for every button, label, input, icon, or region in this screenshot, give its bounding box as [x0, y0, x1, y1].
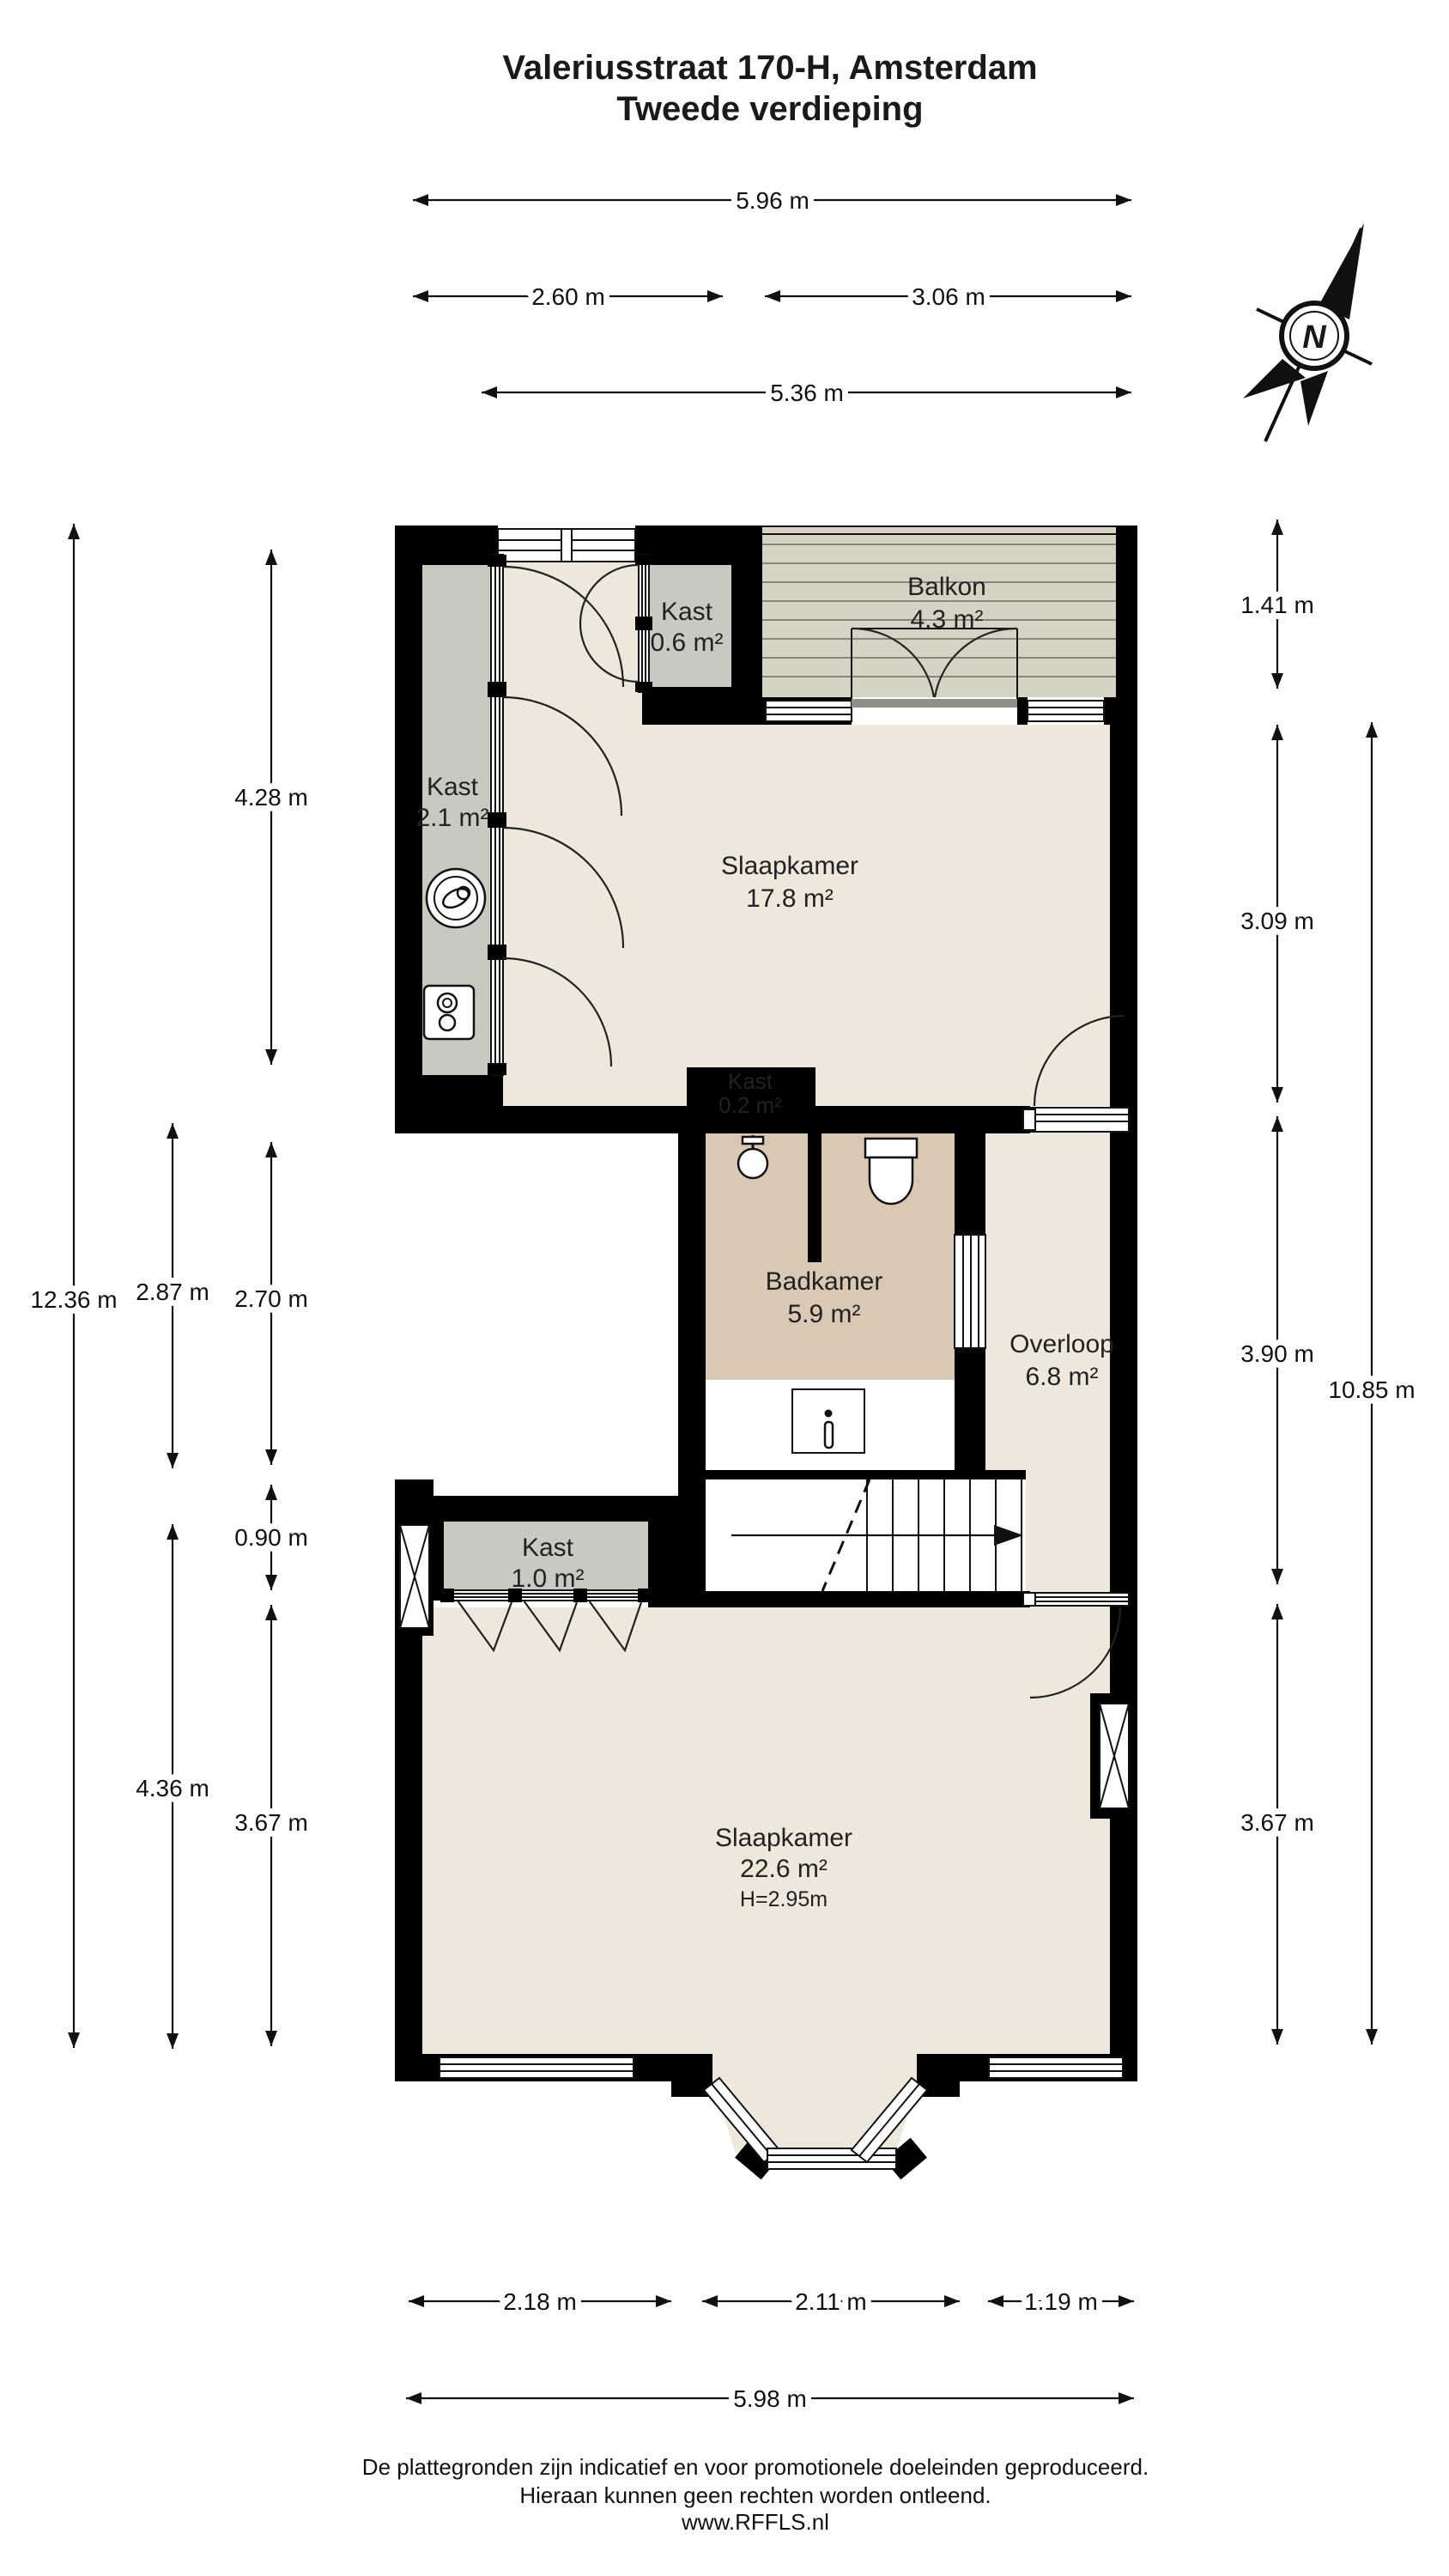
dim-label: 0.90 m — [234, 1524, 308, 1551]
window-bathroom-interior — [955, 1235, 985, 1348]
dim-label: 2.87 m — [136, 1279, 209, 1305]
dim-label: 2.70 m — [234, 1285, 308, 1312]
title-line2: Tweede verdieping — [616, 90, 923, 128]
label-balkon-name: Balkon — [907, 573, 986, 601]
dim-label: 1.19 m — [1024, 2288, 1098, 2315]
label-kast10-name: Kast — [522, 1534, 574, 1562]
dim-label: 4.28 m — [234, 784, 308, 811]
window-balcony-right — [1028, 701, 1104, 721]
dim-right-390: 3.90 m — [1240, 1116, 1314, 1584]
shower-icon — [792, 1389, 864, 1453]
dim-label: 3.67 m — [1240, 1809, 1314, 1836]
disclaimer-line2: Hieraan kunnen geen rechten worden ontle… — [519, 2482, 991, 2508]
dim-top-596: 5.96 m — [413, 187, 1131, 214]
dim-left-270: 2.70 m — [234, 1142, 308, 1465]
label-slaapkamer2-area: 22.6 m² — [740, 1855, 828, 1883]
label-badkamer-area: 5.9 m² — [787, 1300, 860, 1328]
label-slaapkamer2-name: Slaapkamer — [715, 1824, 852, 1852]
dim-label: 2.11 m — [795, 2288, 867, 2315]
dim-left-1236: 12.36 m — [30, 524, 117, 2048]
dim-right-141: 1.41 m — [1240, 519, 1314, 689]
dim-label: 5.36 m — [770, 380, 844, 406]
window-top — [498, 529, 635, 562]
dim-label: 2.60 m — [531, 283, 605, 310]
disclaimer-line1: De plattegronden zijn indicatief en voor… — [362, 2454, 1149, 2480]
dim-label: 2.18 m — [503, 2288, 577, 2315]
label-kast21-area: 2.1 m² — [415, 804, 488, 832]
disclaimer-line3: www.RFFLS.nl — [681, 2509, 829, 2535]
title-line1: Valeriusstraat 170-H, Amsterdam — [502, 49, 1037, 87]
label-slaapkamer2-height: H=2.95m — [740, 1887, 828, 1911]
label-kast21-name: Kast — [427, 773, 479, 801]
overloop-landing — [1026, 1479, 1110, 1607]
dim-bottom-119: 1.19 m — [988, 2288, 1134, 2315]
window-south-left — [440, 2057, 634, 2078]
floor-plan-canvas: Valeriusstraat 170-H, Amsterdam Tweede v… — [0, 0, 1449, 2576]
label-kast06-name: Kast — [661, 598, 713, 626]
dim-left-367: 3.67 m — [234, 1605, 308, 2046]
label-kast06-area: 0.6 m² — [650, 629, 723, 657]
dim-top-536: 5.36 m — [482, 380, 1131, 406]
dim-top-260: 2.60 m — [413, 283, 723, 310]
dim-left-436: 4.36 m — [136, 1524, 209, 2049]
dim-label: 5.98 m — [733, 2385, 807, 2412]
page-title: Valeriusstraat 170-H, Amsterdam Tweede v… — [502, 49, 1037, 128]
dim-label: 3.90 m — [1240, 1340, 1314, 1367]
dim-left-287: 2.87 m — [136, 1123, 209, 1468]
flue-shaft-left-icon — [400, 1525, 429, 1628]
toilet-icon — [865, 1139, 917, 1204]
dim-right-1085: 10.85 m — [1328, 722, 1415, 2044]
label-slaapkamer1-name: Slaapkamer — [721, 852, 858, 880]
dim-label: 1.41 m — [1240, 592, 1314, 618]
window-balcony-left — [766, 701, 852, 721]
compass-north-icon: N — [1243, 223, 1372, 441]
label-overloop-area: 6.8 m² — [1025, 1363, 1098, 1391]
washing-machine-icon — [427, 869, 485, 927]
dim-label: 12.36 m — [30, 1286, 117, 1313]
boiler-icon — [424, 986, 474, 1039]
label-badkamer-name: Badkamer — [766, 1267, 883, 1296]
label-slaapkamer1-area: 17.8 m² — [746, 884, 834, 913]
bedroom1-floor — [503, 725, 1110, 1106]
dim-label: 3.67 m — [234, 1809, 308, 1836]
bedroom1-nook-floor — [503, 555, 642, 697]
dim-bottom-218: 2.18 m — [409, 2288, 671, 2315]
dim-bottom-598: 5.98 m — [406, 2385, 1134, 2412]
dim-label: 10.85 m — [1328, 1376, 1415, 1403]
compass-n-label: N — [1302, 319, 1327, 355]
sink-icon — [738, 1135, 767, 1178]
dim-label: 3.09 m — [1240, 908, 1314, 934]
disclaimer: De plattegronden zijn indicatief en voor… — [362, 2454, 1149, 2535]
dim-label: 4.36 m — [136, 1775, 209, 1801]
label-kast10-area: 1.0 m² — [511, 1564, 584, 1593]
flue-shaft-right-icon — [1100, 1704, 1129, 1808]
label-balkon-area: 4.3 m² — [910, 605, 983, 634]
label-kast02-name: Kast — [728, 1068, 773, 1094]
dim-right-309: 3.09 m — [1240, 725, 1314, 1103]
dim-label: 3.06 m — [912, 283, 985, 310]
dim-right-367: 3.67 m — [1240, 1604, 1314, 2044]
dim-bottom-211: 2.11 m — [702, 2288, 960, 2315]
window-south-right — [989, 2057, 1123, 2078]
label-kast02-area: 0.2 m² — [718, 1092, 782, 1118]
dim-left-090: 0.90 m — [234, 1485, 308, 1590]
label-overloop-name: Overloop — [1009, 1330, 1114, 1358]
dim-top-306: 3.06 m — [765, 283, 1131, 310]
dim-left-428: 4.28 m — [234, 550, 308, 1065]
dim-label: 5.96 m — [736, 187, 809, 214]
